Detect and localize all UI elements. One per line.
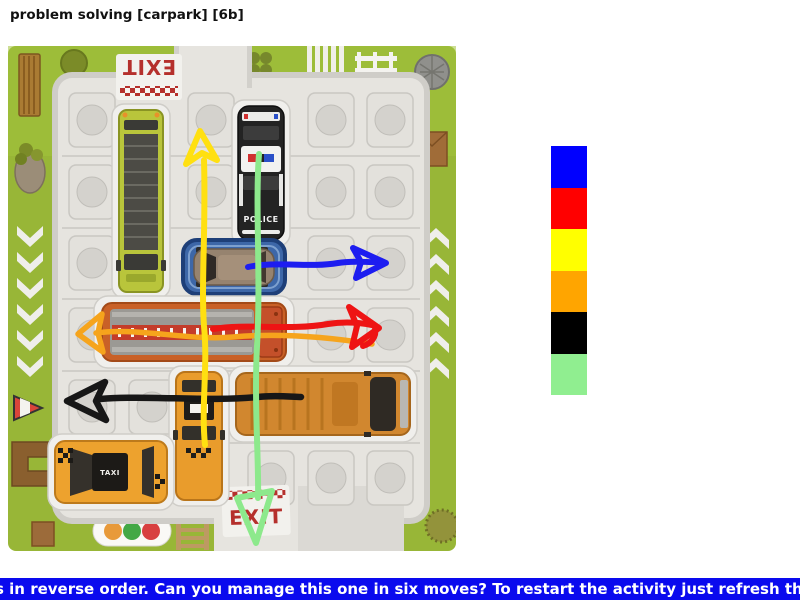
swatch-black[interactable] [551,312,587,354]
vehicle-lime-bus [112,104,170,298]
svg-text:EXIT: EXIT [229,504,284,530]
exit-sign-top: EXIT [116,54,182,100]
swatch-green[interactable] [551,354,587,396]
svg-text:EXIT: EXIT [122,55,176,79]
swatch-blue[interactable] [551,146,587,188]
svg-text:POLICE: POLICE [243,215,278,224]
color-palette [551,146,587,395]
bush-rock-icon [15,143,45,193]
bench-icon [19,54,40,116]
swatch-yellow[interactable] [551,229,587,271]
box-icon-bottom-left [32,522,54,546]
carpark-photo-svg: EXIT EXIT POLICE [8,46,456,551]
instruction-text: s in reverse order. Can you manage this … [0,578,800,600]
carpark-puzzle-photo[interactable]: EXIT EXIT POLICE [8,46,456,551]
vehicle-taxi-horizontal: TAXI [48,434,174,510]
swatch-orange[interactable] [551,271,587,313]
page-title: problem solving [carpark] [6b] [10,7,244,23]
instruction-banner: s in reverse order. Can you manage this … [0,578,800,600]
vehicle-taxi-vertical [169,366,229,506]
exit-chute-top [174,46,252,88]
swatch-red[interactable] [551,188,587,230]
svg-text:TAXI: TAXI [100,469,120,477]
